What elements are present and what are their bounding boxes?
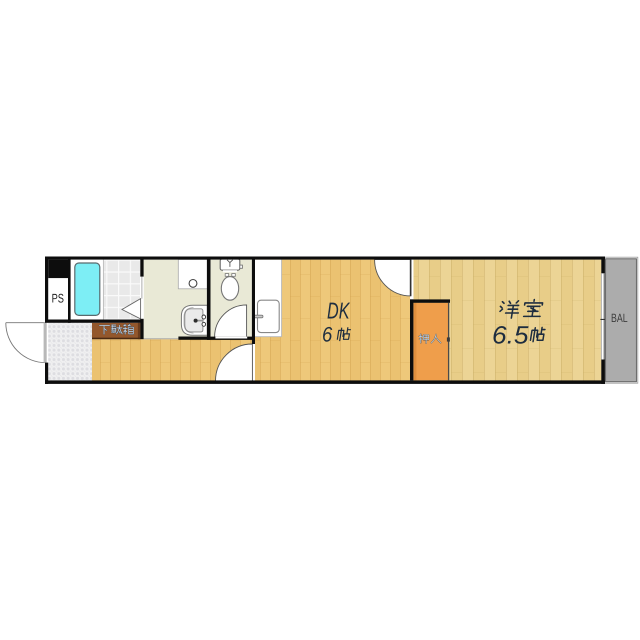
svg-text:6: 6	[322, 323, 333, 346]
svg-text:6.5: 6.5	[492, 321, 529, 349]
svg-text:BAL: BAL	[611, 311, 628, 325]
svg-text:PS: PS	[52, 292, 64, 306]
svg-text:DK: DK	[327, 298, 351, 324]
